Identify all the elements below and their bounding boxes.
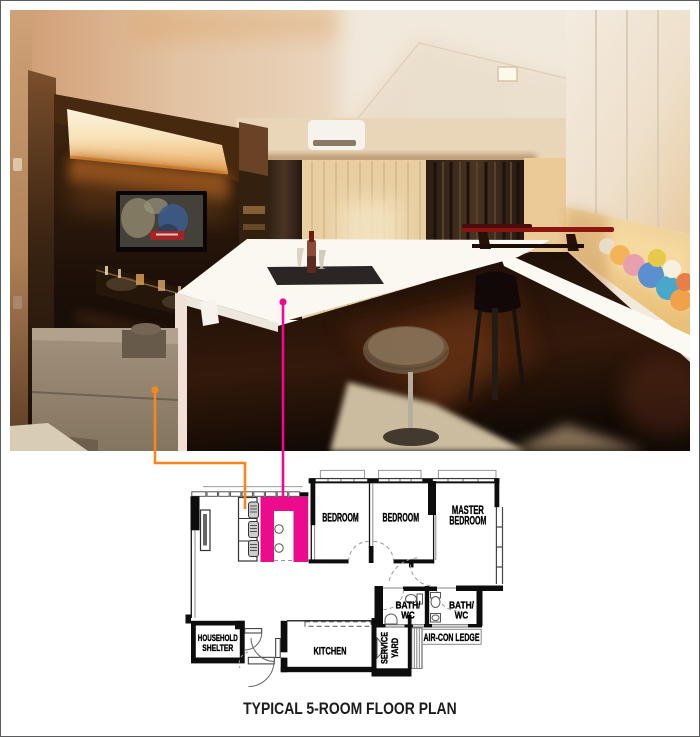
svg-text:WC: WC — [401, 610, 415, 622]
svg-text:WC: WC — [455, 610, 469, 622]
svg-text:BEDROOM: BEDROOM — [322, 513, 359, 525]
svg-text:AIR-CON LEDGE: AIR-CON LEDGE — [424, 632, 480, 644]
svg-text:YARD: YARD — [390, 638, 400, 658]
svg-text:SHELTER: SHELTER — [202, 643, 233, 653]
svg-text:BEDROOM: BEDROOM — [449, 516, 486, 528]
svg-text:HOUSEHOLD: HOUSEHOLD — [198, 633, 238, 643]
svg-text:BEDROOM: BEDROOM — [383, 513, 420, 525]
svg-text:KITCHEN: KITCHEN — [314, 646, 347, 658]
svg-text:SERVICE: SERVICE — [380, 632, 390, 664]
